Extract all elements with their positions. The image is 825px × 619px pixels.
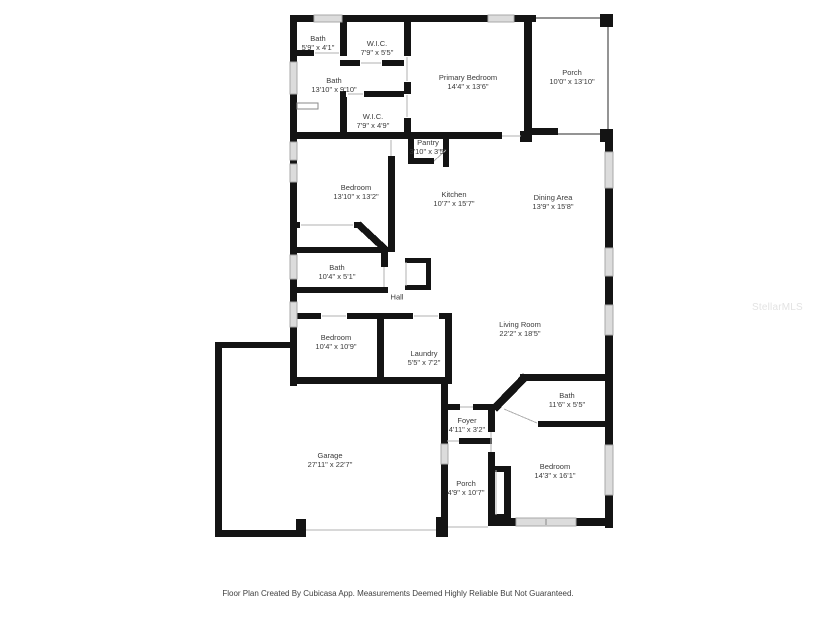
room-label-primary-bedroom: Primary Bedroom 14'4" x 13'6" xyxy=(439,73,497,91)
room-label-kitchen: Kitchen 10'7" x 15'7" xyxy=(433,190,474,208)
room-dims: 13'10" x 9'10" xyxy=(311,85,356,94)
room-name: Bath xyxy=(319,263,356,272)
room-label-bath-1: Bath 5'9" x 4'1" xyxy=(302,34,335,52)
room-label-foyer: Foyer 4'11" x 3'2" xyxy=(449,416,485,434)
room-label-garage: Garage 27'11" x 22'7" xyxy=(308,451,353,469)
room-name: Laundry xyxy=(408,349,441,358)
room-label-porch-bottom: Porch 4'9" x 10'7" xyxy=(448,479,485,497)
room-dims: 27'11" x 22'7" xyxy=(308,460,353,469)
room-dims: 5'5" x 7'2" xyxy=(408,358,441,367)
room-dims: 10'4" x 5'1" xyxy=(319,272,356,281)
stellar-mls-watermark: StellarMLS xyxy=(752,302,803,313)
room-name: W.I.C. xyxy=(361,39,394,48)
room-name: W.I.C. xyxy=(357,112,390,121)
room-name: Living Room xyxy=(499,320,541,329)
room-label-bedroom-2: Bedroom 10'4" x 10'9" xyxy=(315,333,356,351)
room-name: Bath xyxy=(311,76,356,85)
floor-plan-page: Bath 5'9" x 4'1" W.I.C. 7'9" x 5'5" Bath… xyxy=(0,0,825,619)
room-dims: 7'9" x 4'9" xyxy=(357,121,390,130)
room-name: Garage xyxy=(308,451,353,460)
room-label-dining-area: Dining Area 13'9" x 15'8" xyxy=(532,193,573,211)
room-dims: 22'2" x 18'5" xyxy=(499,329,541,338)
room-label-bedroom-3: Bedroom 14'3" x 16'1" xyxy=(534,462,575,480)
room-label-hall: Hall xyxy=(391,293,404,302)
room-name: Porch xyxy=(448,479,485,488)
room-label-pantry: Pantry 3'10" x 3'5" xyxy=(410,138,447,156)
room-dims: 13'10" x 13'2" xyxy=(333,192,378,201)
room-dims: 5'9" x 4'1" xyxy=(302,43,335,52)
shower-fixture xyxy=(297,103,318,109)
room-name: Kitchen xyxy=(433,190,474,199)
room-dims: 13'9" x 15'8" xyxy=(532,202,573,211)
room-name: Bedroom xyxy=(333,183,378,192)
room-label-bath-2: Bath 13'10" x 9'10" xyxy=(311,76,356,94)
room-name: Bath xyxy=(302,34,335,43)
room-label-bath-4: Bath 11'6" x 5'5" xyxy=(549,391,585,409)
room-label-wic-2: W.I.C. 7'9" x 4'9" xyxy=(357,112,390,130)
room-dims: 10'4" x 10'9" xyxy=(315,342,356,351)
room-label-porch-top: Porch 10'0" x 13'10" xyxy=(549,68,594,86)
room-name: Pantry xyxy=(410,138,447,147)
room-dims: 7'9" x 5'5" xyxy=(361,48,394,57)
room-label-wic-1: W.I.C. 7'9" x 5'5" xyxy=(361,39,394,57)
room-dims: 10'7" x 15'7" xyxy=(433,199,474,208)
walls xyxy=(215,14,613,537)
room-label-living-room: Living Room 22'2" x 18'5" xyxy=(499,320,541,338)
room-dims: 4'11" x 3'2" xyxy=(449,425,485,434)
room-name: Bath xyxy=(549,391,585,400)
room-label-bedroom-1: Bedroom 13'10" x 13'2" xyxy=(333,183,378,201)
room-name: Hall xyxy=(391,293,404,302)
room-dims: 10'0" x 13'10" xyxy=(549,77,594,86)
room-dims: 11'6" x 5'5" xyxy=(549,400,585,409)
room-dims: 3'10" x 3'5" xyxy=(410,147,447,156)
room-name: Porch xyxy=(549,68,594,77)
room-name: Dining Area xyxy=(532,193,573,202)
room-label-laundry: Laundry 5'5" x 7'2" xyxy=(408,349,441,367)
room-dims: 4'9" x 10'7" xyxy=(448,488,485,497)
room-dims: 14'4" x 13'6" xyxy=(439,82,497,91)
room-name: Primary Bedroom xyxy=(439,73,497,82)
footer-disclaimer: Floor Plan Created By Cubicasa App. Meas… xyxy=(0,589,796,598)
room-name: Foyer xyxy=(449,416,485,425)
room-name: Bedroom xyxy=(534,462,575,471)
floor-plan-drawing xyxy=(0,0,825,619)
room-name: Bedroom xyxy=(315,333,356,342)
room-dims: 14'3" x 16'1" xyxy=(534,471,575,480)
room-label-bath-3: Bath 10'4" x 5'1" xyxy=(319,263,356,281)
